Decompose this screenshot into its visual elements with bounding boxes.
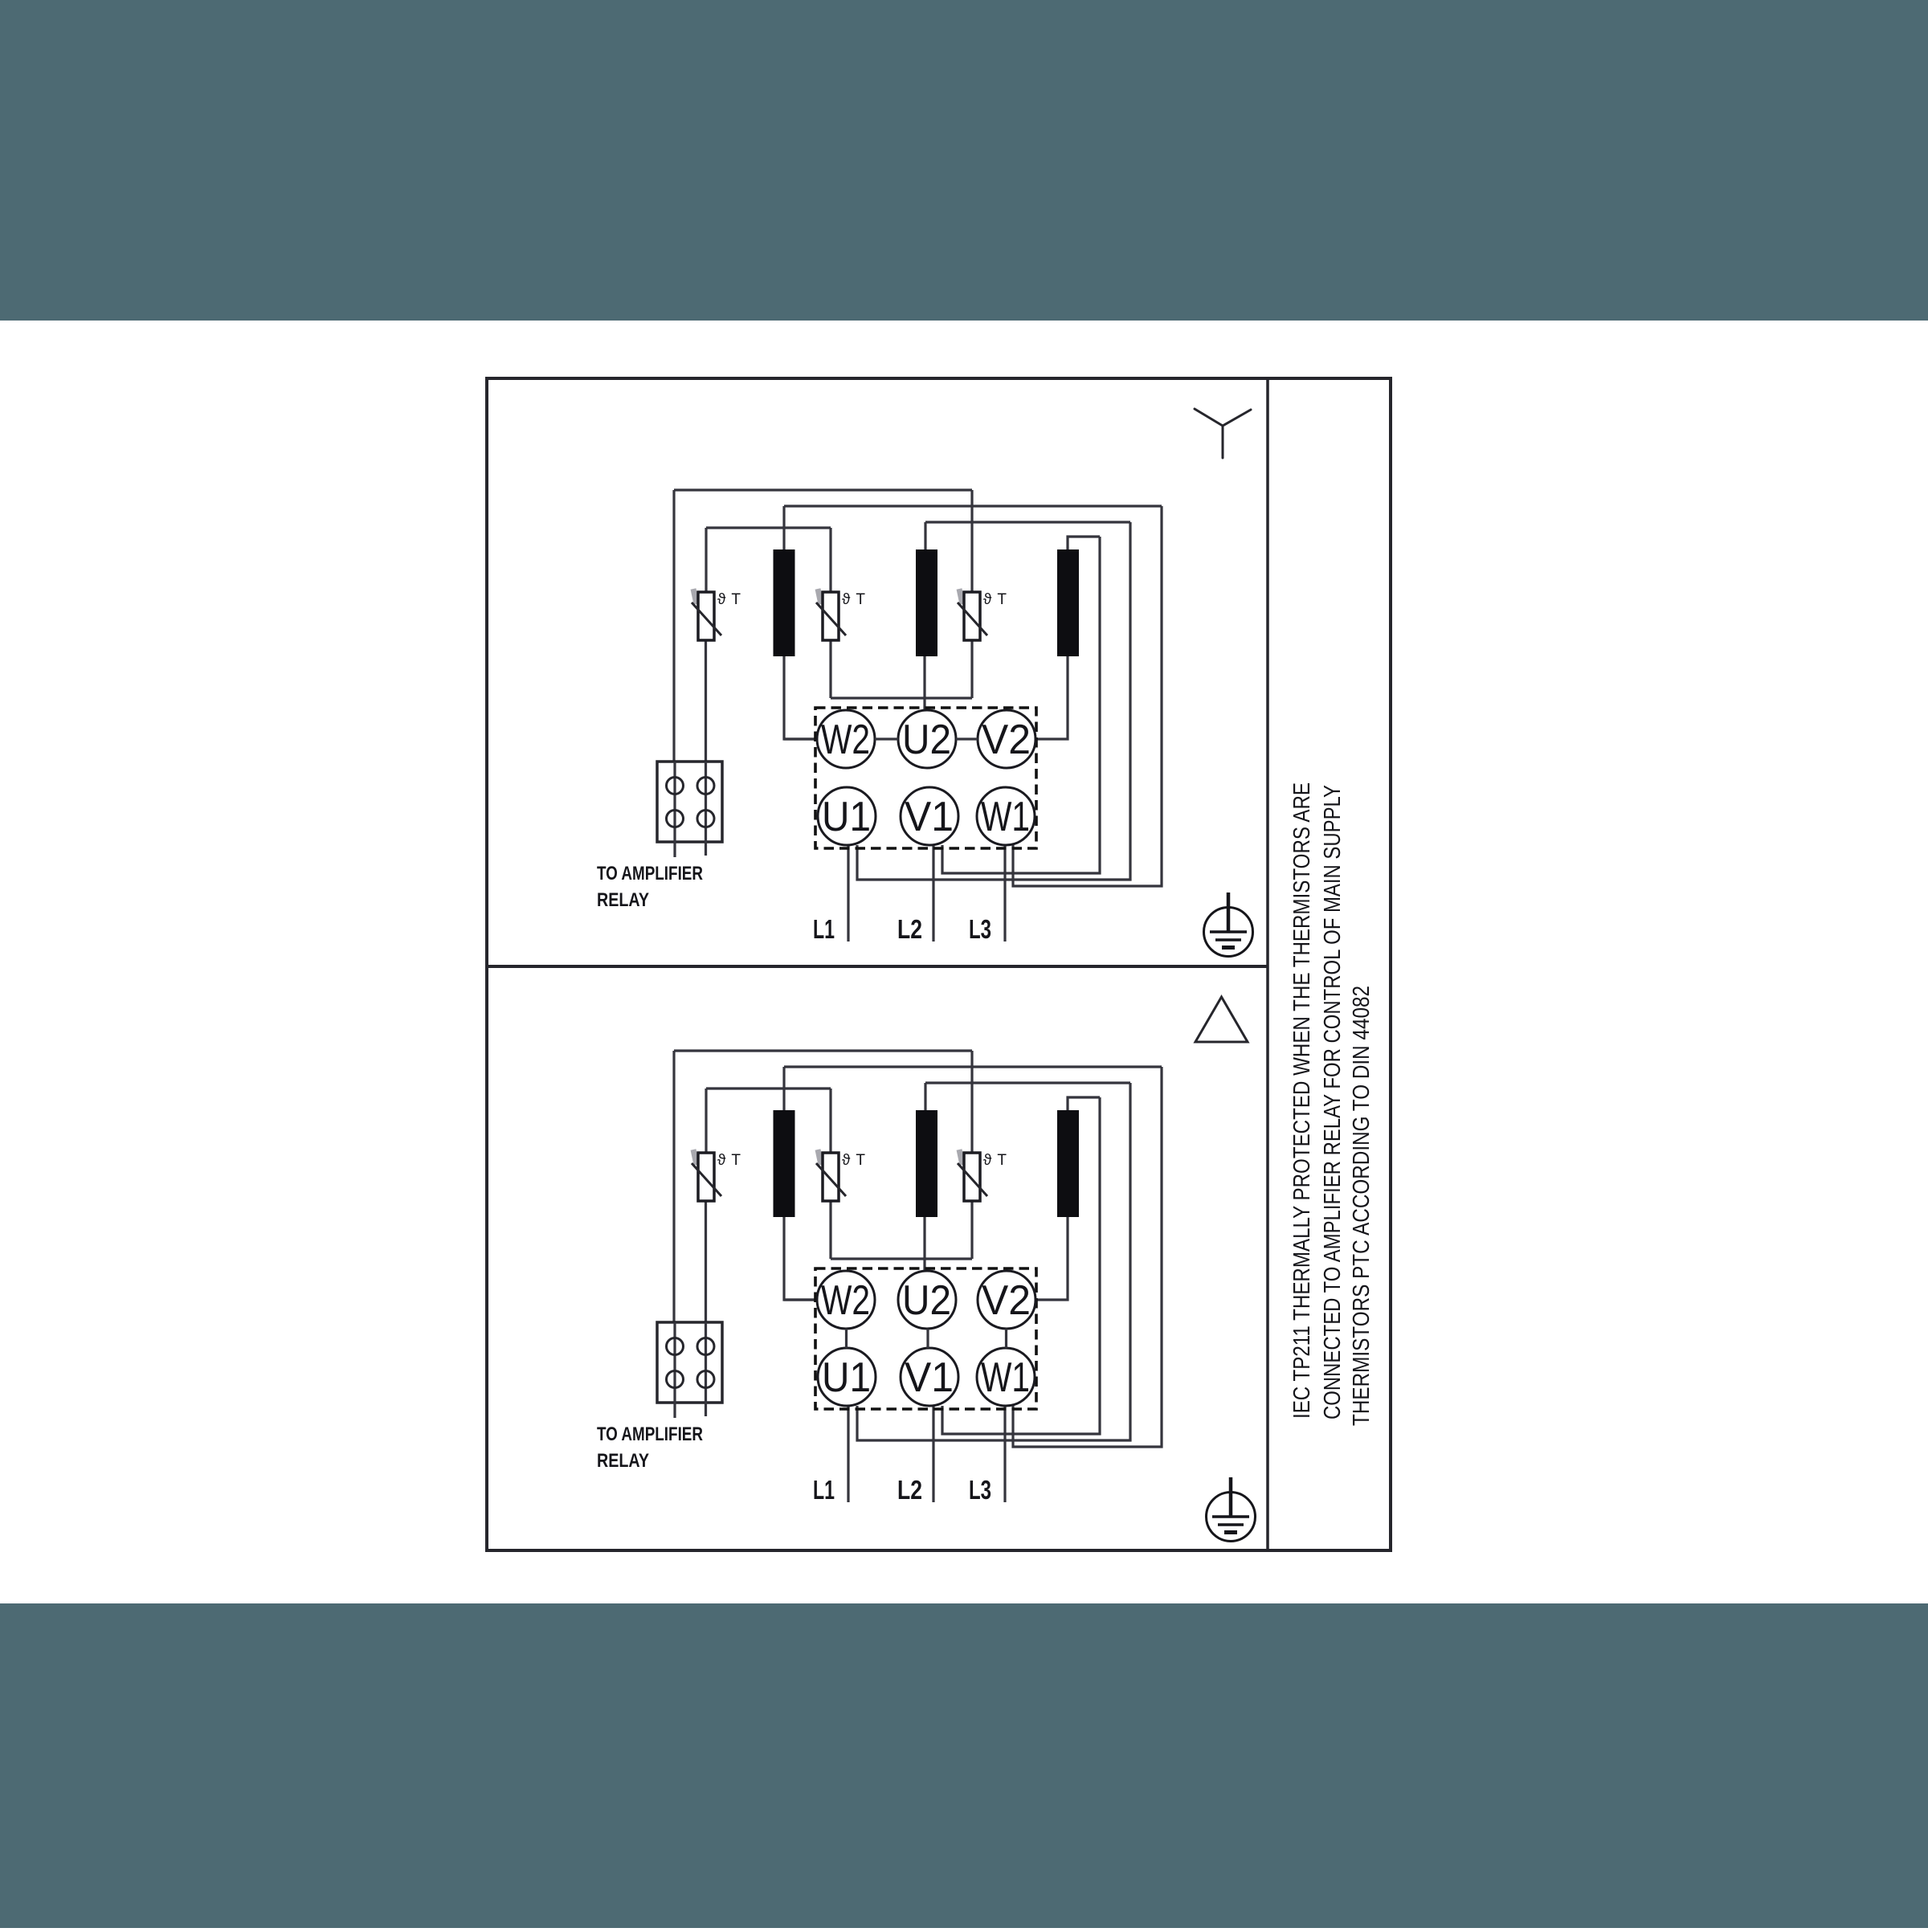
svg-text:RELAY: RELAY bbox=[597, 889, 649, 911]
svg-text:L2: L2 bbox=[897, 1475, 922, 1505]
svg-text:W1: W1 bbox=[981, 1354, 1030, 1401]
svg-text:W2: W2 bbox=[821, 717, 870, 763]
svg-text:W2: W2 bbox=[821, 1277, 870, 1324]
svg-text:TO AMPLIFIER: TO AMPLIFIER bbox=[597, 1423, 703, 1445]
svg-text:U2: U2 bbox=[902, 717, 951, 763]
svg-text:TO AMPLIFIER: TO AMPLIFIER bbox=[597, 863, 703, 884]
svg-text:L3: L3 bbox=[969, 914, 991, 944]
svg-text:L1: L1 bbox=[813, 1475, 835, 1505]
svg-text:V1: V1 bbox=[905, 1354, 954, 1401]
svg-text:U2: U2 bbox=[902, 1277, 951, 1324]
svg-text:V1: V1 bbox=[905, 794, 954, 840]
svg-text:W1: W1 bbox=[981, 794, 1030, 840]
svg-text:V2: V2 bbox=[982, 1277, 1031, 1324]
svg-text:L1: L1 bbox=[813, 914, 835, 944]
svg-text:CONNECTED TO AMPLIFIER RELAY F: CONNECTED TO AMPLIFIER RELAY FOR CONTROL… bbox=[1320, 785, 1346, 1419]
svg-text:IEC TP211 THERMALLY PROTECTED: IEC TP211 THERMALLY PROTECTED WHEN THE T… bbox=[1289, 782, 1315, 1419]
svg-text:THERMISTORS PTC ACCORDING TO D: THERMISTORS PTC ACCORDING TO DIN 44082 bbox=[1349, 986, 1375, 1426]
svg-text:U1: U1 bbox=[822, 794, 871, 840]
svg-text:RELAY: RELAY bbox=[597, 1450, 649, 1472]
svg-text:L3: L3 bbox=[969, 1475, 991, 1505]
svg-text:U1: U1 bbox=[822, 1354, 871, 1401]
svg-text:V2: V2 bbox=[982, 717, 1031, 763]
svg-text:L2: L2 bbox=[897, 914, 922, 944]
